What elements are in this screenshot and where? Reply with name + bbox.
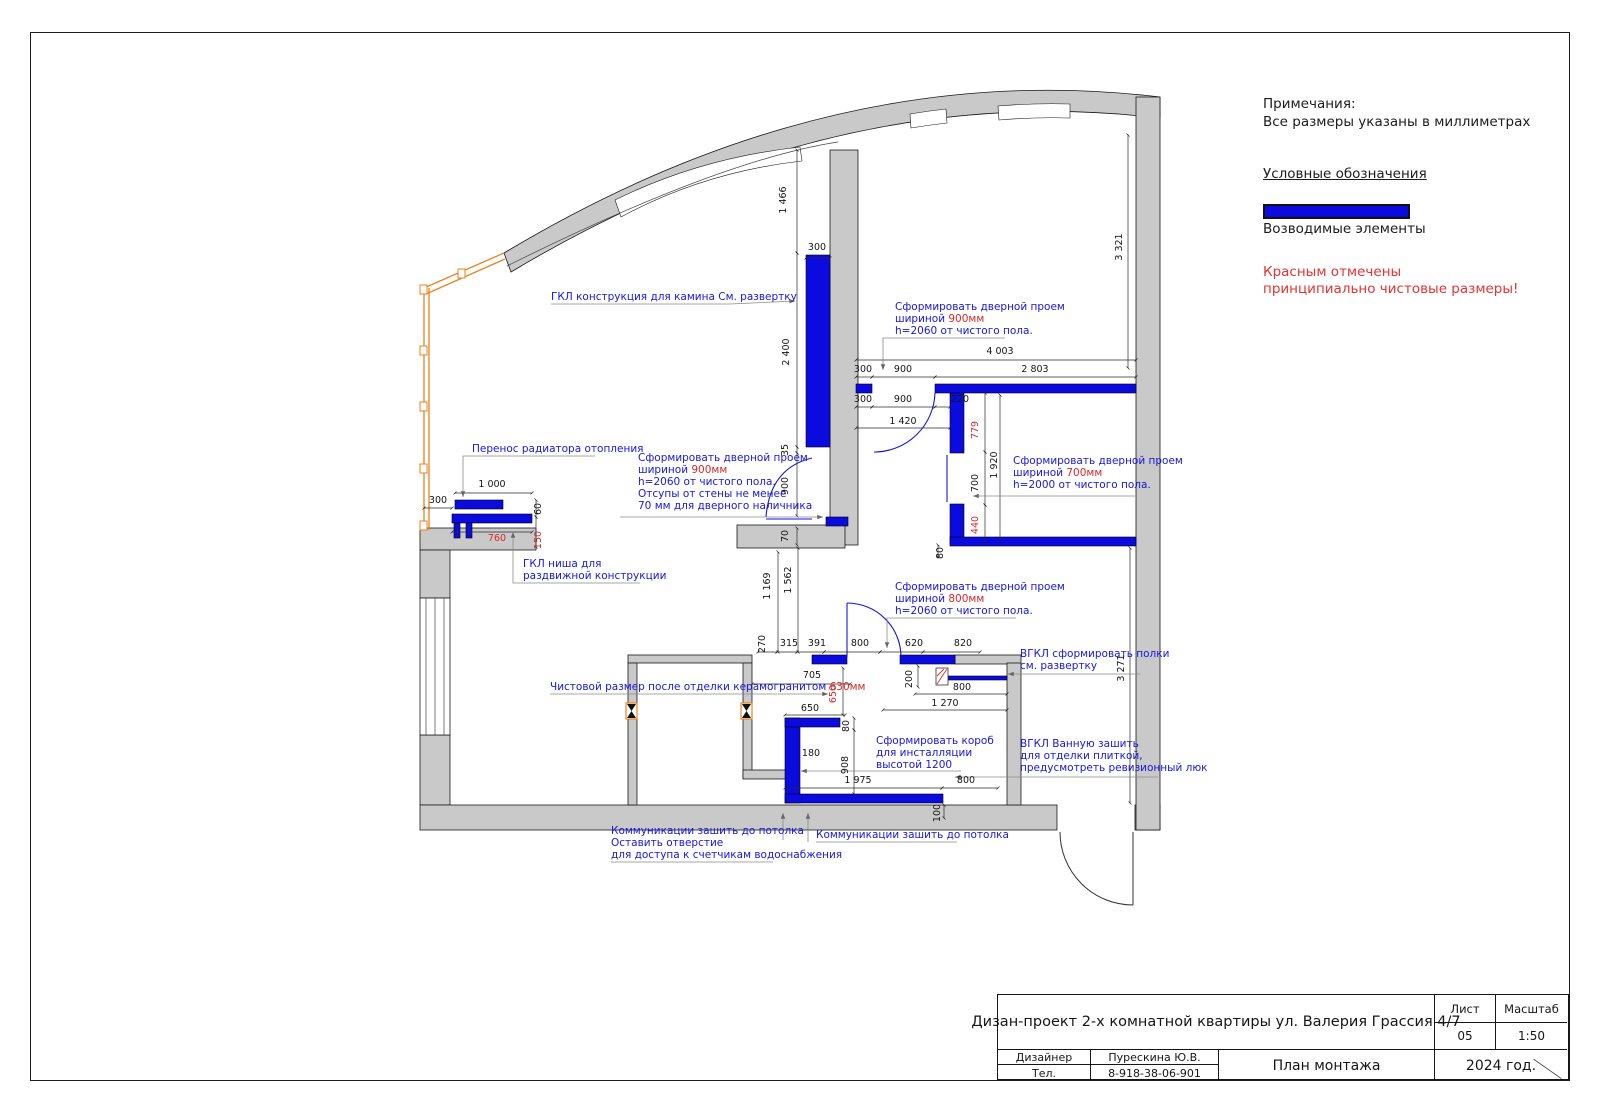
annotation-text: ВГКЛ Ванную зашить <box>1020 738 1139 750</box>
annotation-text: для отделки плиткой, <box>1020 750 1143 762</box>
dimension-label: 779 <box>970 421 981 439</box>
revision-hatch <box>936 668 948 685</box>
year-slash-decoration <box>1533 1059 1562 1079</box>
annotation-text: ВГКЛ сформировать полки <box>1020 648 1169 660</box>
dimension-label: 820 <box>954 638 972 649</box>
dimension-label: 760 <box>488 533 506 544</box>
annotation-text: шириной 800мм <box>895 593 984 605</box>
notes-subtitle: Все размеры указаны в миллиметрах <box>1263 114 1530 130</box>
dimension-label: 270 <box>757 635 768 653</box>
dimension-label: 1 420 <box>889 416 916 427</box>
dimension-label: 800 <box>953 682 971 693</box>
dimension-label: 908 <box>840 756 851 774</box>
annotation-text: Коммуникации зашить до потолка <box>611 825 804 837</box>
phone-label-cell: Тел. <box>998 1065 1091 1081</box>
annotation-text: Сформировать короб <box>876 735 994 747</box>
dimension-label: 705 <box>803 670 821 681</box>
dimension-label: 1 169 <box>762 572 773 599</box>
dimension-label: 300 <box>854 364 872 375</box>
dimension-label: 700 <box>970 474 981 492</box>
annotation-text: для доступа к счетчикам водоснабжения <box>611 849 842 861</box>
scale-label-cell: Масштаб <box>1496 995 1567 1023</box>
annotation-text: Оставить отверстие <box>611 837 723 849</box>
dimension-label: 1 562 <box>783 566 794 593</box>
annotation-text: h=2060 от чистого пола. <box>895 325 1033 337</box>
annotation-text: для инсталляции <box>876 747 972 759</box>
dimension-label: 1 000 <box>478 479 505 490</box>
dimension-label: 220 <box>951 394 969 405</box>
dimension-label: 80 <box>935 547 946 559</box>
designer-value-cell: Пурескина Ю.В. <box>1091 1049 1219 1065</box>
annotation-text: 70 мм для дверного наличника <box>638 500 812 512</box>
year-cell: 2024 год. <box>1435 1049 1567 1081</box>
drawing-sheet: { "notes": { "title": "Примечания:", "su… <box>0 0 1600 1114</box>
dimension-label: 100 <box>932 804 943 822</box>
dimension-label: 2 400 <box>781 338 792 365</box>
legend-title: Условные обозначения <box>1263 166 1427 182</box>
annotation-text: Чистовой размер после отделки керамогран… <box>550 681 865 693</box>
legend-blue-bar <box>1263 204 1410 219</box>
dimension-label: 1 975 <box>844 775 871 786</box>
entrance-door <box>1060 832 1133 905</box>
designer-label-cell: Дизайнер <box>998 1049 1091 1065</box>
dimension-label: 80 <box>841 720 852 732</box>
dimension-label: 440 <box>970 516 981 534</box>
dimension-label: 300 <box>854 394 872 405</box>
sheet-label-cell: Лист <box>1435 995 1496 1023</box>
legend-item-label: Возводимые элементы <box>1263 221 1426 237</box>
dimension-label: 391 <box>808 638 826 649</box>
title-block: Дизан-проект 2-х комнатной квартиры ул. … <box>997 994 1569 1080</box>
dimension-label: 2 803 <box>1021 364 1048 375</box>
annotation-text: шириной 700мм <box>1013 467 1102 479</box>
dimension-label: 60 <box>533 503 544 515</box>
dimension-label: 900 <box>894 364 912 375</box>
annotation-text: Сформировать дверной проем <box>895 581 1065 593</box>
annotation-text: шириной 900мм <box>638 464 727 476</box>
dimension-label: 1 270 <box>931 698 958 709</box>
annotation-text: Сформировать дверной проем <box>1013 455 1183 467</box>
dimension-label: 900 <box>894 394 912 405</box>
annotation-text: шириной 900мм <box>895 313 984 325</box>
scale-value-cell: 1:50 <box>1496 1023 1567 1049</box>
annotation-text: Отсупы от стены не менее <box>638 488 786 500</box>
annotation-text: Сформировать дверной проем <box>895 301 1065 313</box>
annotation-text: предусмотреть ревизионный люк <box>1020 762 1208 774</box>
annotation-text: Сформировать дверной проем <box>638 452 808 464</box>
annotation-text: h=2060 от чистого пола. <box>895 605 1033 617</box>
project-title-cell: Дизан-проект 2-х комнатной квартиры ул. … <box>998 995 1435 1049</box>
dimension-label: 800 <box>851 638 869 649</box>
dimension-label: 200 <box>904 670 915 688</box>
annotation-text: h=2000 от чистого пола. <box>1013 479 1151 491</box>
dimension-label: 1 920 <box>989 451 1000 478</box>
sheet-value-cell: 05 <box>1435 1023 1496 1049</box>
junction-markers <box>626 703 752 719</box>
annotation-text: Коммуникации зашить до потолка <box>816 829 1009 841</box>
drawing-title-cell: План монтажа <box>1219 1049 1435 1081</box>
dimension-label: 800 <box>957 775 975 786</box>
dimension-label: 300 <box>429 495 447 506</box>
dimension-label: 620 <box>905 638 923 649</box>
dimension-label: 4 003 <box>986 346 1013 357</box>
dimension-label: 315 <box>780 638 798 649</box>
notes-title: Примечания: <box>1263 96 1356 112</box>
annotation-text: h=2060 от чистого пола. <box>638 476 776 488</box>
annotation-text: Перенос радиатора отопления <box>472 443 643 455</box>
phone-value-cell: 8-918-38-06-901 <box>1091 1065 1219 1081</box>
dimension-label: 180 <box>802 748 820 759</box>
annotation-text: высотой 1200 <box>876 759 952 771</box>
dimension-label: 650 <box>801 703 819 714</box>
annotation-text: раздвижной конструкции <box>523 570 666 582</box>
red-note-line1: Красным отмечены <box>1263 264 1401 280</box>
red-note-line2: принципиально чистовые размеры! <box>1263 281 1518 297</box>
dimension-label: 3 321 <box>1114 233 1125 260</box>
dimension-label: 150 <box>533 531 544 549</box>
dimension-label: 70 <box>780 530 791 542</box>
living-room-window <box>420 598 450 735</box>
annotation-text: ГКЛ ниша для <box>523 558 601 570</box>
dimension-label: 1 466 <box>778 186 789 213</box>
annotation-text: ГКЛ конструкция для камина См. развертку <box>551 291 797 303</box>
annotation-text: см. развертку <box>1020 660 1097 672</box>
dimension-label: 300 <box>808 242 826 253</box>
